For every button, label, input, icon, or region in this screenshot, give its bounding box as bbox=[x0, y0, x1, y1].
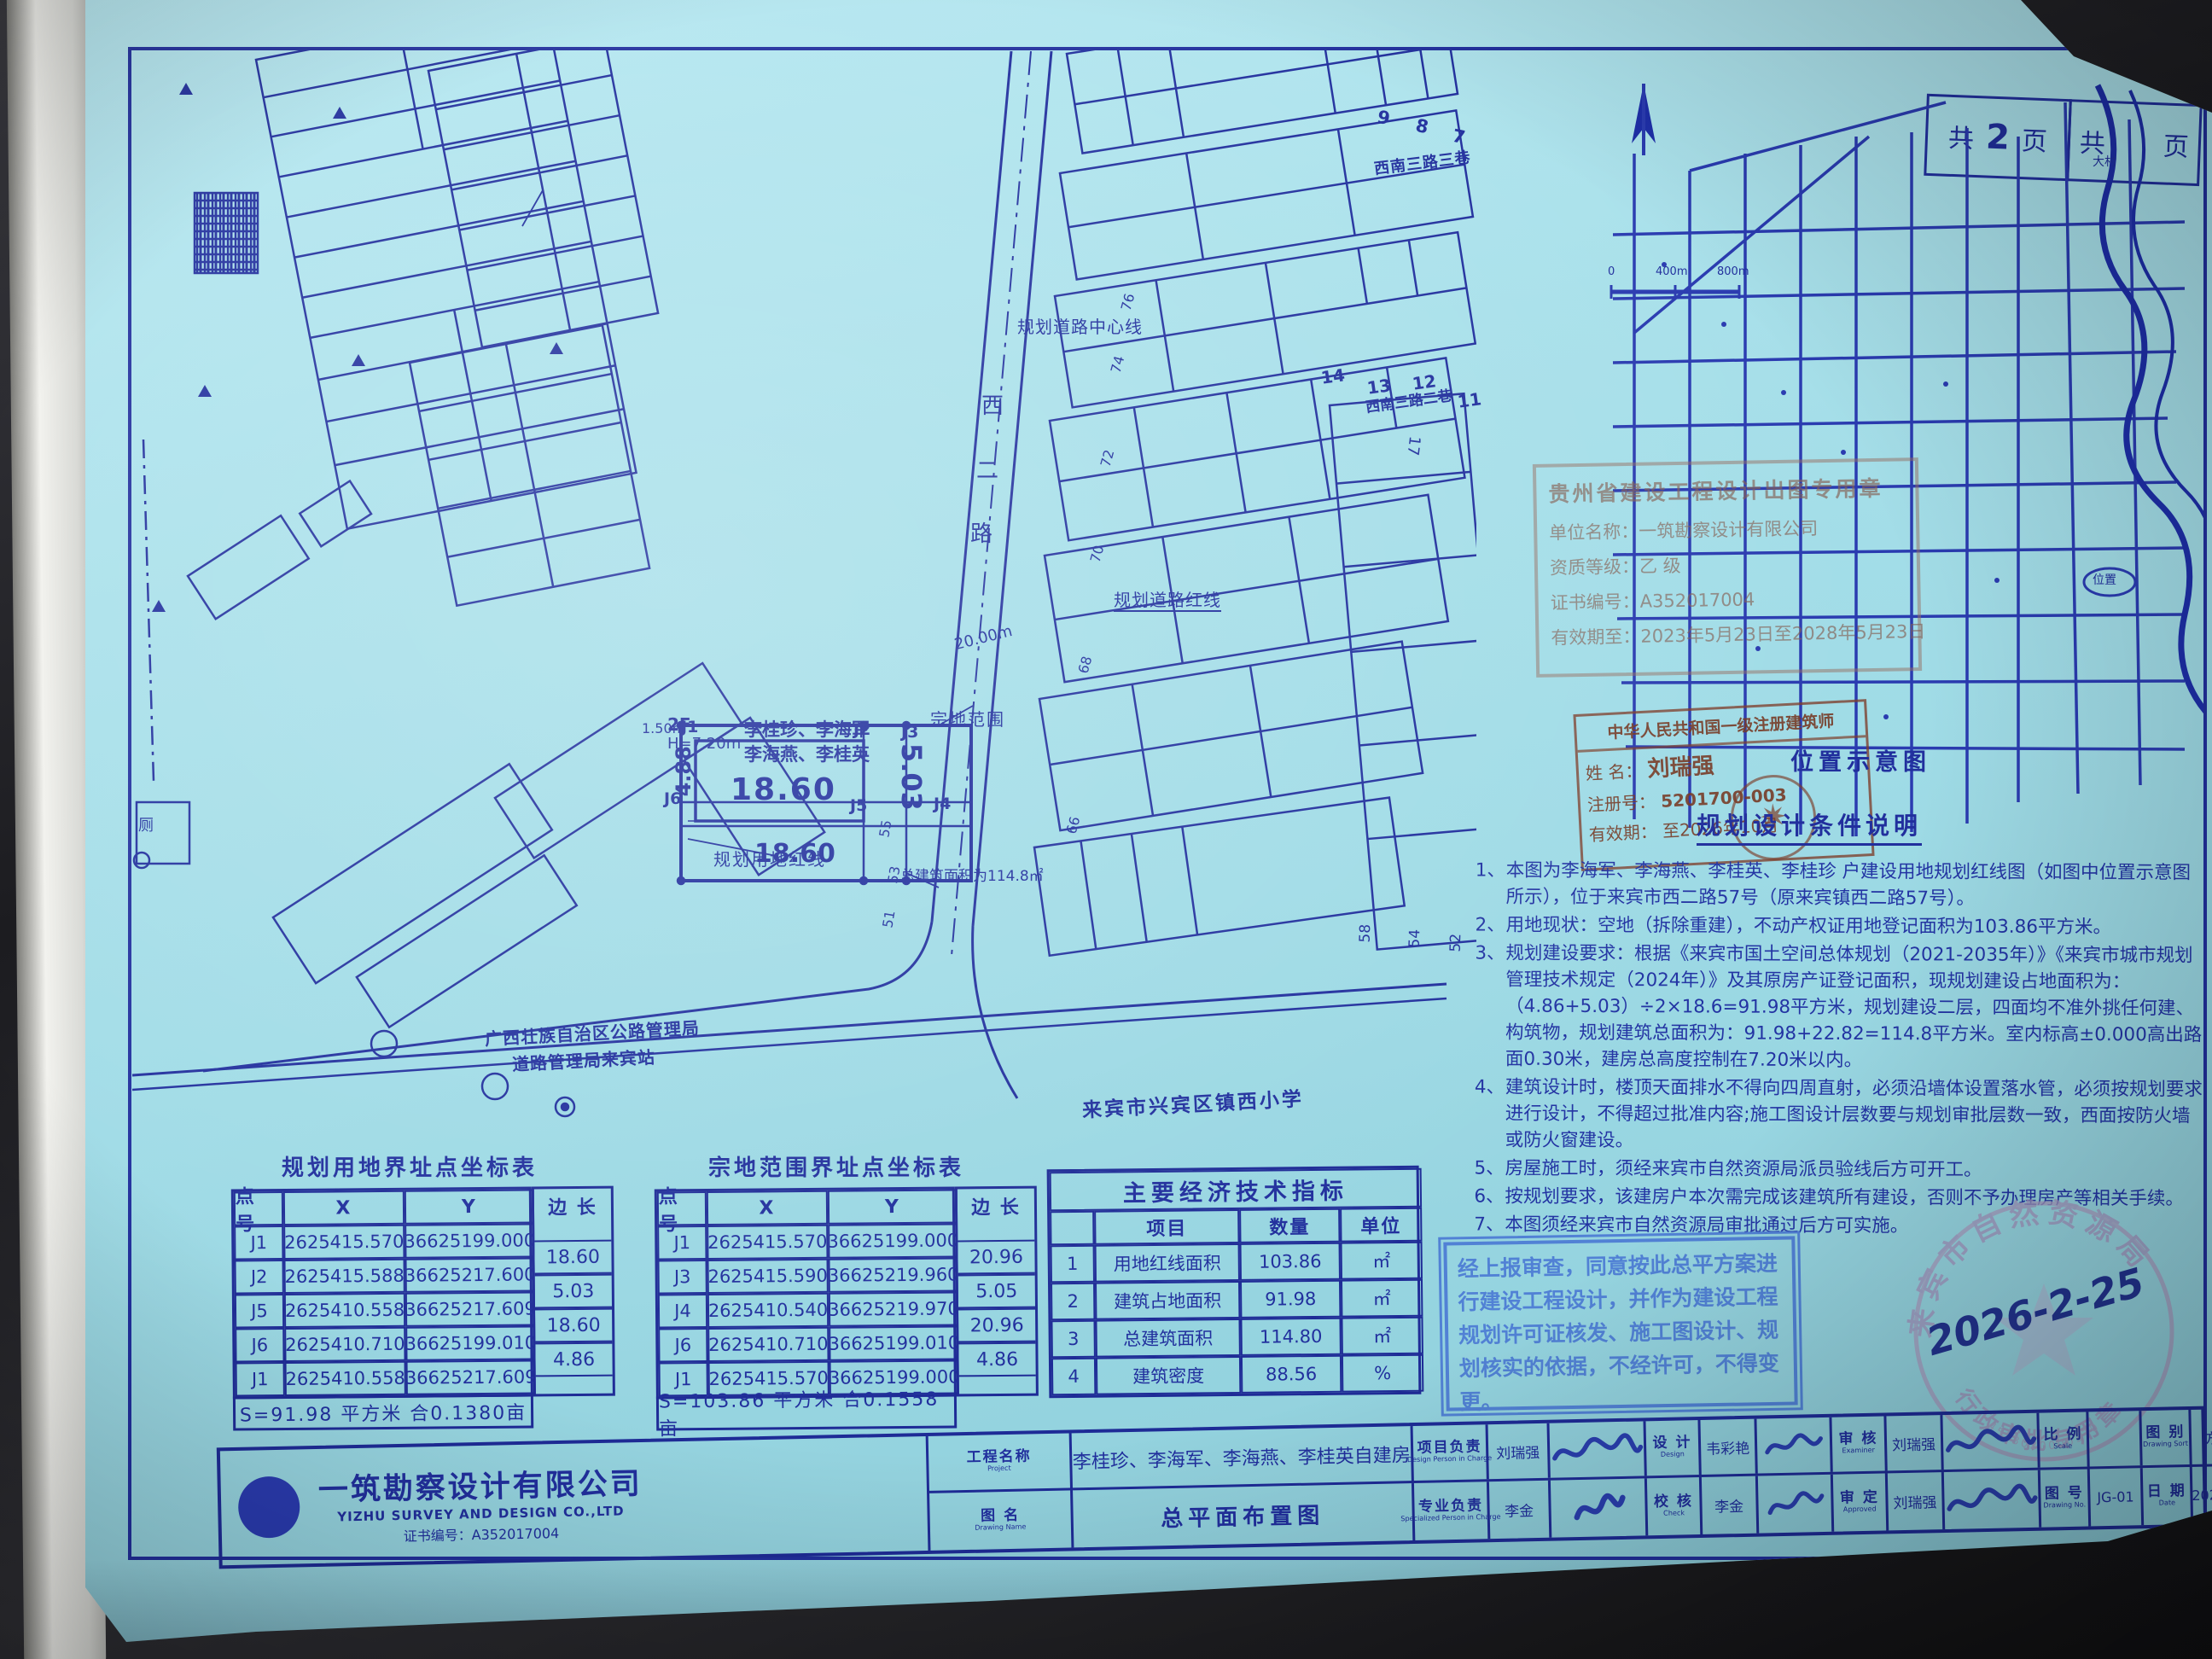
toilet-label: 厕 bbox=[138, 818, 154, 835]
approval-stamp: 经上报审查，同意按此总平方案进行建设工程设计，并作为建设工程规划许可证核发、施工… bbox=[1443, 1236, 1797, 1411]
cell-point: J1 bbox=[657, 1225, 707, 1260]
cell-y: 36625219.960 bbox=[828, 1257, 958, 1292]
role-name: 刘瑞强 bbox=[1888, 1472, 1945, 1530]
note-no: 4、 bbox=[1475, 1074, 1505, 1154]
col-header: X bbox=[707, 1190, 828, 1225]
note-text: 房屋施工时，须经来宾市自然资源局派员验线后方可开工。 bbox=[1505, 1155, 2204, 1185]
cell-y: 36625217.609 bbox=[406, 1359, 536, 1394]
cell-unit: ㎡ bbox=[1341, 1317, 1423, 1355]
note-item-1: 1、本图为李海军、李海燕、李桂英、李桂珍 户建设用地规划红线图（如图中位置示意图… bbox=[1476, 858, 2206, 913]
project-name: 李桂珍、李海军、李海燕、李桂英自建房 bbox=[1072, 1426, 1414, 1490]
edge-value: 20.96 bbox=[958, 1308, 1035, 1343]
table2-footer: S=103.86 平方米 合0.1558亩 bbox=[656, 1394, 957, 1430]
project-label: 工程名称 bbox=[967, 1450, 1032, 1466]
parcel-no-14: 14 bbox=[1320, 365, 1347, 388]
cell-point: J6 bbox=[658, 1328, 707, 1363]
point-j4: J4 bbox=[934, 795, 951, 814]
cell-qty: 91.98 bbox=[1240, 1280, 1341, 1318]
col-header bbox=[1050, 1211, 1094, 1246]
col-header: 单位 bbox=[1340, 1208, 1422, 1243]
cell-point: J6 bbox=[235, 1328, 284, 1363]
role-name: 李金 bbox=[1702, 1476, 1759, 1534]
point-j3: J3 bbox=[901, 724, 918, 742]
cell-x: 2625410.710 bbox=[707, 1327, 829, 1362]
cell-unit: ㎡ bbox=[1341, 1242, 1423, 1280]
role-label-en: Design bbox=[1661, 1452, 1685, 1459]
note-no: 6、 bbox=[1474, 1184, 1505, 1210]
role-label: 专业负责 bbox=[1418, 1499, 1483, 1515]
company-block: 一筑勘察设计有限公司 YIZHU SURVEY AND DESIGN CO.,L… bbox=[220, 1436, 931, 1565]
edge-value: 18.60 bbox=[535, 1308, 612, 1343]
table-econ-indicators: 主要经济技术指标 项目 数量 单位 1 用地红线面积 103.86 ㎡ 2 建筑… bbox=[1047, 1166, 1422, 1399]
col-header: Y bbox=[405, 1189, 534, 1224]
permit-stamp-title: 贵州省建设工程设计出图专用章 bbox=[1548, 468, 1904, 515]
note-text: 本图为李海军、李海燕、李桂英、李桂珍 户建设用地规划红线图（如图中位置示意图所示… bbox=[1506, 858, 2206, 913]
road-west-no-53: 53 bbox=[885, 865, 904, 885]
cell-y: 36625199.000 bbox=[828, 1223, 958, 1258]
signature-specialty-lead bbox=[1551, 1478, 1648, 1537]
photographed-blueprint: 共 2 页 共 页 bbox=[0, 0, 2212, 1659]
point-j1: J1 bbox=[681, 719, 698, 737]
cell-x: 2625410.710 bbox=[284, 1327, 405, 1362]
scale-label-en: Scale bbox=[2054, 1444, 2073, 1452]
note-no: 5、 bbox=[1474, 1155, 1505, 1182]
col-header: X bbox=[283, 1190, 405, 1225]
cell-x: 2625410.558 bbox=[285, 1361, 406, 1396]
road-name-xi: 西 bbox=[981, 394, 1004, 420]
drawingno-value: JG-01 bbox=[2090, 1468, 2144, 1526]
role-label-en: Specialized Person in Charge bbox=[1401, 1514, 1501, 1523]
col-header: 点 号 bbox=[234, 1191, 283, 1226]
parcel-no-52: 52 bbox=[1448, 934, 1465, 952]
role-label: 校 核 bbox=[1654, 1494, 1693, 1511]
sort-value: 方案 bbox=[2191, 1409, 2212, 1464]
road-west-no-55: 55 bbox=[876, 819, 895, 839]
note-item-5: 5、房屋施工时，须经来宾市自然资源局派员验线后方可开工。 bbox=[1474, 1155, 2204, 1185]
edge-length-column: 边 长 18.60 5.03 18.60 4.86 bbox=[532, 1186, 615, 1397]
edge-value: 5.03 bbox=[535, 1274, 612, 1309]
cell-x: 2625415.570 bbox=[283, 1225, 405, 1260]
role-label: 设 计 bbox=[1652, 1436, 1691, 1452]
cell-y: 36625199.000 bbox=[405, 1223, 534, 1258]
point-j6: J6 bbox=[664, 790, 681, 809]
dim-5-03: 5.03 bbox=[895, 743, 927, 811]
permit-stamp-grade: 资质等级：乙 级 bbox=[1550, 544, 1906, 585]
cell-item: 用地红线面积 bbox=[1095, 1243, 1240, 1283]
company-cert-no: 证书编号：A352017004 bbox=[319, 1519, 643, 1546]
cell-unit: ㎡ bbox=[1341, 1279, 1423, 1318]
parcel-no-13: 13 bbox=[1366, 375, 1393, 399]
road-redline-label: 规划道路红线 bbox=[1114, 591, 1221, 612]
edge-value: 5.05 bbox=[958, 1274, 1035, 1309]
col-header: 数量 bbox=[1239, 1208, 1340, 1243]
cell-no: 3 bbox=[1051, 1320, 1095, 1359]
scale-label: 比 例 bbox=[2043, 1428, 2082, 1444]
dim-18-60-top: 18.60 bbox=[731, 772, 836, 807]
total-area-note: 总建筑面积为114.8㎡ bbox=[900, 869, 1044, 886]
role-label: 审 定 bbox=[1840, 1490, 1879, 1506]
parcel-no-58: 58 bbox=[1358, 924, 1375, 943]
edge-value: 20.96 bbox=[958, 1240, 1034, 1275]
role-label-en: Examiner bbox=[1842, 1447, 1875, 1455]
approval-stamp-text: 经上报审查，同意按此总平方案进行建设工程设计，并作为建设工程规划许可证核发、施工… bbox=[1458, 1251, 1780, 1415]
signature-designer bbox=[1756, 1417, 1832, 1474]
permit-stamp-validity: 有效期至：2023年5月23日至2028年5月23日 bbox=[1551, 614, 1906, 655]
role-label-en: Approved bbox=[1843, 1506, 1877, 1514]
architect-name: 刘瑞强 bbox=[1647, 754, 1714, 783]
cell-item: 建筑密度 bbox=[1096, 1356, 1241, 1395]
architect-valid-label: 有效期： bbox=[1588, 821, 1657, 845]
note-no: 1、 bbox=[1476, 858, 1506, 911]
cell-point: J4 bbox=[658, 1294, 707, 1329]
table1-title: 规划用地界址点坐标表 bbox=[282, 1150, 538, 1182]
name-values-col: 李桂珍、李海军、李海燕、李桂英自建房 总平面布置图 bbox=[1072, 1426, 1416, 1547]
edge-length-column: 边 长 20.96 5.05 20.96 4.86 bbox=[955, 1186, 1039, 1397]
role-name: 李金 bbox=[1489, 1481, 1551, 1539]
planning-notes: 1、本图为李海军、李海燕、李桂英、李桂珍 户建设用地规划红线图（如图中位置示意图… bbox=[1474, 858, 2206, 1243]
cell-item: 建筑占地面积 bbox=[1095, 1281, 1240, 1320]
map-scale-400: 400m bbox=[1656, 266, 1687, 279]
drawing-label-cell: 图 名 Drawing Name bbox=[929, 1490, 1074, 1551]
cell-x: 2625415.570 bbox=[707, 1225, 828, 1260]
point-j5: J5 bbox=[850, 797, 867, 816]
col-header: 项目 bbox=[1094, 1209, 1239, 1245]
drawing-label-en: Drawing Name bbox=[975, 1524, 1026, 1533]
note-text: 建筑设计时，楼顶天面排水不得向四周直射，必须沿墙体设置落水管，必须按规划要求进行… bbox=[1505, 1074, 2205, 1156]
note-item-2: 2、用地现状：空地（拆除重建），不动产权证用地登记面积为103.86平方米。 bbox=[1475, 912, 2205, 941]
table-boundary-coords: 点 号 X Y J1 2625415.570 36625199.000 J2 2… bbox=[231, 1186, 533, 1430]
road-name-lu: 路 bbox=[970, 522, 992, 548]
col-header-edge: 边 长 bbox=[958, 1189, 1034, 1224]
cell-x: 2625415.590 bbox=[707, 1259, 828, 1294]
cell-x: 2625415.588 bbox=[283, 1259, 405, 1294]
roles-grid: 项目负责Design Person in Charge 刘瑞强 设 计Desig… bbox=[1413, 1409, 2212, 1540]
role-name: 韦彩艳 bbox=[1700, 1419, 1757, 1475]
cell-item: 总建筑面积 bbox=[1095, 1318, 1240, 1358]
notes-title: 规划设计条件说明 bbox=[1697, 812, 1922, 846]
signature-checker bbox=[1758, 1475, 1834, 1534]
owners-line1: 李桂珍、李海军 bbox=[744, 719, 870, 740]
cell-point: J1 bbox=[236, 1362, 285, 1397]
date-value: 2026.01 bbox=[2192, 1466, 2212, 1524]
drawingno-label: 图 号 bbox=[2045, 1486, 2084, 1502]
blueprint-sheet: 共 2 页 共 页 bbox=[0, 0, 2212, 1659]
parcel-scope-label: 宗地范围 bbox=[930, 710, 1005, 730]
parcel-no-11: 11 bbox=[1457, 389, 1483, 412]
cell-unit: % bbox=[1342, 1354, 1423, 1393]
map-scale-800: 800m bbox=[1717, 266, 1749, 279]
cell-y: 36625199.010 bbox=[829, 1325, 958, 1360]
parcel-no-54: 54 bbox=[1407, 929, 1424, 948]
company-name: 一筑勘察设计有限公司 bbox=[317, 1458, 643, 1509]
map-scale-0: 0 bbox=[1608, 266, 1615, 279]
cell-point: J5 bbox=[235, 1294, 284, 1329]
signature-project-lead bbox=[1550, 1421, 1647, 1477]
econ-table-title: 主要经济技术指标 bbox=[1050, 1168, 1422, 1212]
cell-qty: 88.56 bbox=[1241, 1355, 1342, 1394]
road-west-no-51: 51 bbox=[880, 910, 899, 929]
provincial-permit-stamp: 贵州省建设工程设计出图专用章 单位名称：一筑勘察设计有限公司 资质等级：乙 级 … bbox=[1533, 457, 1922, 678]
role-name: 刘瑞强 bbox=[1886, 1415, 1943, 1470]
drawing-label: 图 名 bbox=[981, 1509, 1020, 1525]
note-text: 用地现状：空地（拆除重建），不动产权证用地登记面积为103.86平方米。 bbox=[1505, 912, 2205, 941]
cell-point: J3 bbox=[657, 1260, 707, 1295]
map-site-marker: 位置 bbox=[2093, 573, 2116, 587]
point-j2: J2 bbox=[853, 721, 870, 740]
role-label-en: Design Person in Charge bbox=[1407, 1456, 1493, 1465]
note-no: 7、 bbox=[1474, 1212, 1505, 1238]
dim-1-50m: 1.50m bbox=[642, 721, 685, 736]
edge-value: 18.60 bbox=[534, 1240, 611, 1275]
table-parcel-coords: 点 号 X Y J1 2625415.570 36625199.000 J3 2… bbox=[655, 1186, 957, 1430]
map-title: 位置示意图 bbox=[1790, 749, 1931, 776]
road-centerline-label: 规划道路中心线 bbox=[1017, 317, 1143, 337]
table1-footer: S=91.98 平方米 合0.1380亩 bbox=[233, 1394, 533, 1430]
cell-y: 36625217.609 bbox=[405, 1291, 535, 1326]
cell-y: 36625217.600 bbox=[405, 1257, 534, 1292]
signature-examiner bbox=[1942, 1413, 2040, 1470]
signature-approver bbox=[1944, 1470, 2041, 1529]
cell-x: 2625410.558 bbox=[284, 1293, 405, 1328]
col-header-edge: 边 长 bbox=[534, 1189, 611, 1224]
cell-no: 4 bbox=[1051, 1358, 1096, 1396]
cell-y: 36625219.970 bbox=[829, 1291, 958, 1326]
architect-name-label: 姓 名： bbox=[1585, 760, 1643, 783]
note-no: 2、 bbox=[1475, 912, 1505, 939]
cell-y: 36625199.010 bbox=[405, 1325, 535, 1360]
cell-x: 2625410.540 bbox=[707, 1293, 829, 1328]
cell-point: J1 bbox=[234, 1225, 283, 1260]
role-label-en: Check bbox=[1663, 1511, 1685, 1518]
cell-qty: 114.80 bbox=[1240, 1318, 1341, 1356]
cell-no: 1 bbox=[1051, 1245, 1095, 1284]
land-red-line-label: 规划用地红线 bbox=[713, 850, 826, 870]
sort-label: 图 别 bbox=[2145, 1425, 2185, 1441]
cell-point: J2 bbox=[234, 1260, 283, 1295]
note-no: 3、 bbox=[1475, 940, 1506, 1073]
date-label: 日 期 bbox=[2147, 1484, 2186, 1500]
table2-title: 宗地范围界址点坐标表 bbox=[708, 1150, 964, 1182]
road-name-er: 二 bbox=[976, 459, 998, 485]
parcel-no-17: 17 bbox=[1403, 435, 1423, 457]
sort-label-en: Drawing Sort bbox=[2143, 1441, 2188, 1450]
date-label-en: Date bbox=[2158, 1500, 2175, 1508]
cell-qty: 103.86 bbox=[1240, 1243, 1341, 1281]
note-item-4: 4、建筑设计时，楼顶天面排水不得向四周直射，必须沿墙体设置落水管，必须按规划要求… bbox=[1475, 1074, 2205, 1156]
project-label-cell: 工程名称 Project bbox=[928, 1433, 1073, 1493]
map-village-label: 大村 bbox=[2093, 155, 2116, 169]
edge-value: 4.86 bbox=[958, 1342, 1035, 1377]
drawingno-label-en: Drawing No. bbox=[2043, 1502, 2086, 1511]
cell-no: 2 bbox=[1051, 1283, 1095, 1321]
note-text: 规划建设要求：根据《来宾市国土空间总体规划（2021-2035年）》《来宾市城市… bbox=[1505, 940, 2206, 1075]
drawing-name: 总平面布置图 bbox=[1073, 1483, 1415, 1547]
name-labels-col: 工程名称 Project 图 名 Drawing Name bbox=[928, 1433, 1074, 1550]
permit-stamp-unit: 单位名称：一筑勘察设计有限公司 bbox=[1549, 509, 1905, 550]
architect-reg-label: 注册号： bbox=[1586, 791, 1656, 815]
company-logo-icon bbox=[237, 1476, 300, 1538]
project-label-en: Project bbox=[987, 1466, 1011, 1474]
site-plan-linework bbox=[128, 47, 1476, 1156]
role-label: 审 核 bbox=[1838, 1432, 1877, 1448]
note-item-3: 3、规划建设要求：根据《来宾市国土空间总体规划（2021-2035年）》《来宾市… bbox=[1475, 940, 2206, 1075]
role-name: 刘瑞强 bbox=[1488, 1423, 1551, 1479]
owners-line2: 李海燕、李桂英 bbox=[744, 744, 870, 765]
col-header: Y bbox=[828, 1189, 958, 1224]
scale-value bbox=[2088, 1411, 2142, 1466]
col-header: 点 号 bbox=[657, 1191, 707, 1226]
edge-value: 4.86 bbox=[535, 1342, 612, 1377]
permit-stamp-cert: 证书编号：A352017004 bbox=[1550, 579, 1906, 620]
